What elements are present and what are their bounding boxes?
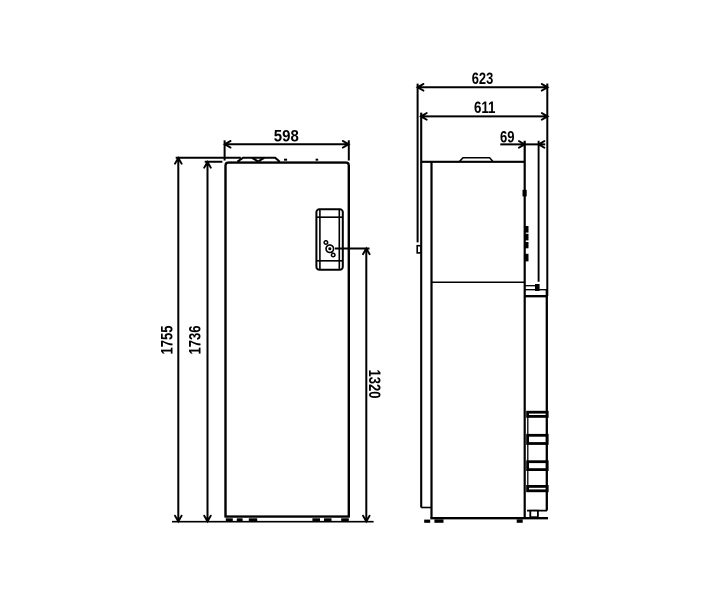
svg-text:69: 69 [500,127,515,146]
svg-text:623: 623 [472,69,494,88]
svg-text:1320: 1320 [365,370,384,399]
svg-text:598: 598 [274,126,299,145]
svg-text:1736: 1736 [185,326,204,355]
svg-text:611: 611 [474,98,496,117]
svg-text:1755: 1755 [157,326,176,355]
